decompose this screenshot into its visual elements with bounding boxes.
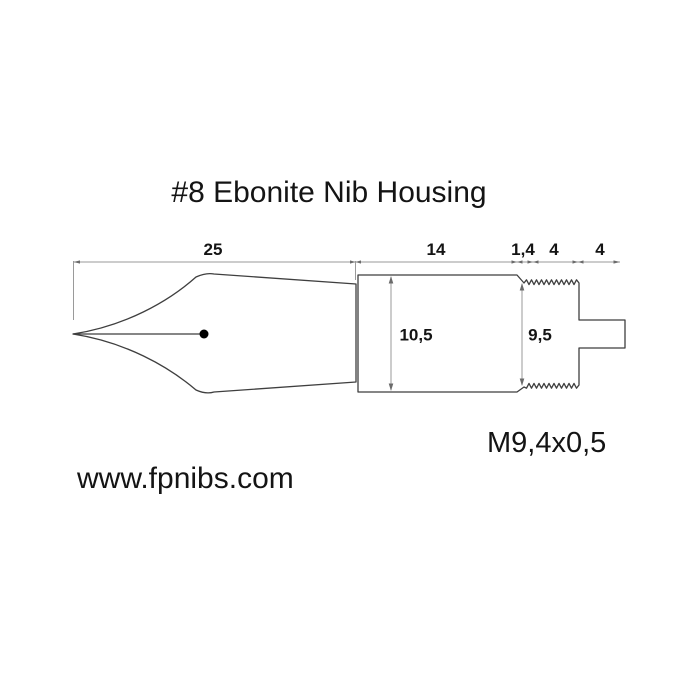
dimension-tick-4-4 (573, 260, 584, 263)
drawing-canvas: #8 Ebonite Nib Housing 25 14 1,4 4 4 10,… (0, 0, 700, 700)
thread-diameter-arrow-top (520, 283, 525, 291)
dimension-tick-1-4-4 (528, 260, 539, 263)
dim-label-thread-diameter: 9,5 (528, 327, 552, 344)
dimension-arrow-left-end (74, 260, 81, 263)
dim-label-nib-length: 25 (204, 241, 223, 258)
body-diameter-arrow-bottom (389, 384, 394, 392)
dim-label-body-diameter: 10,5 (399, 327, 432, 344)
drawing-title: #8 Ebonite Nib Housing (171, 178, 486, 208)
dim-label-body-length: 14 (427, 241, 446, 258)
housing-outline (358, 275, 625, 392)
body-diameter-arrow-top (389, 276, 394, 284)
nib-outline (73, 274, 356, 393)
dim-label-tab-length: 4 (595, 241, 604, 258)
thread-spec-label: M9,4x0,5 (487, 429, 606, 458)
thread-diameter-arrow-bottom (520, 379, 525, 387)
dimension-arrow-right-end (614, 260, 621, 263)
nib-housing-drawing (0, 0, 700, 700)
dim-label-chamfer-length: 1,4 (511, 241, 535, 258)
dim-label-thread-length: 4 (549, 241, 558, 258)
dimension-tick-14-1-4 (512, 260, 523, 263)
breather-hole (200, 330, 209, 339)
website-text: www.fpnibs.com (77, 464, 294, 494)
